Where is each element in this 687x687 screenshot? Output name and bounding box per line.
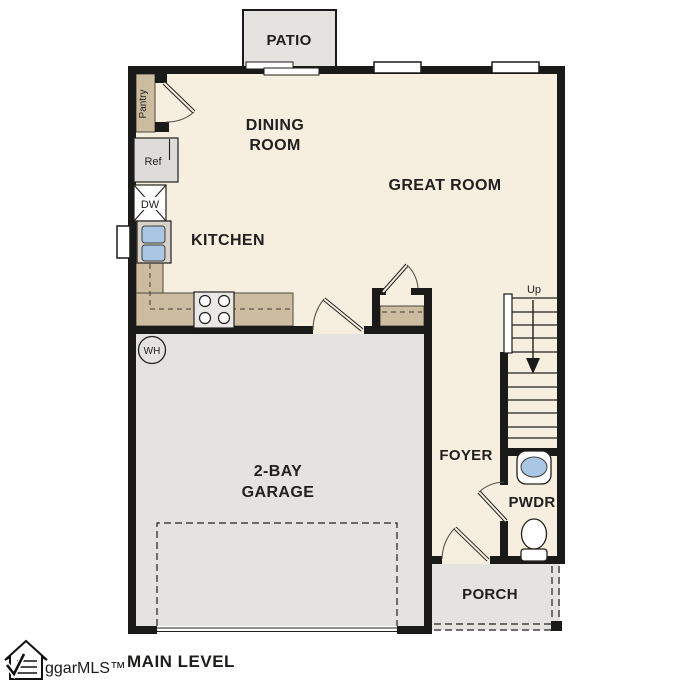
stair-railing [504,294,512,353]
closet-shelf [380,306,424,326]
garage-label-line1: 2-BAY [254,463,303,480]
dining-room-label-line2: ROOM [249,137,300,154]
level-title: MAIN LEVEL [127,652,235,671]
wall-closet-stub-right [411,288,432,295]
dining-room-label-line1: DINING [246,117,304,134]
wall-foyer-bottom-left [432,556,442,564]
pantry-label: Pantry [138,90,149,119]
garage-floor [136,334,424,626]
sliding-door-panel-2 [264,68,319,75]
wall-pantry-stub-top [155,74,167,83]
powder-room-label: PWDR [508,494,555,511]
garage-door-opening [157,628,397,632]
water-heater-label: WH [144,346,161,357]
floor-plan-svg: PATIO DINING ROOM GREAT ROOM KITCHEN 2-B… [0,0,687,687]
porch-label: PORCH [462,586,518,603]
mls-logo: ggarMLS™ [5,641,126,679]
garage-label-line2: GARAGE [242,484,315,501]
floor-plan-image: PATIO DINING ROOM GREAT ROOM KITCHEN 2-B… [0,0,687,687]
kitchen-label: KITCHEN [191,232,265,249]
wall-garage-top-right [364,326,432,334]
toilet [521,519,547,561]
great-room-label: GREAT ROOM [388,177,501,194]
window-top-1 [374,62,421,73]
porch-post [551,621,562,631]
wall-center-vertical [424,288,432,634]
wall-right [557,66,565,564]
stairs-up-label: Up [527,284,541,296]
wall-pantry-stub-bottom [155,122,169,132]
wall-garage-bottom-right [397,626,432,634]
wall-garage-bottom-left [128,626,157,634]
wall-stairs-left [500,352,508,456]
mls-logo-house-icon [5,641,47,679]
wall-pwdr-left-top [500,456,508,485]
powder-sink [517,451,551,484]
window-kitchen-sink [117,226,130,258]
kitchen-sink [137,221,171,263]
watermark-text: ggarMLS™ [45,660,126,677]
stove [194,292,234,328]
refrigerator-label: Ref [144,156,162,168]
patio-label: PATIO [266,32,311,49]
foyer-label: FOYER [439,447,492,464]
window-top-2 [492,62,539,73]
dishwasher-label: DW [141,199,160,211]
